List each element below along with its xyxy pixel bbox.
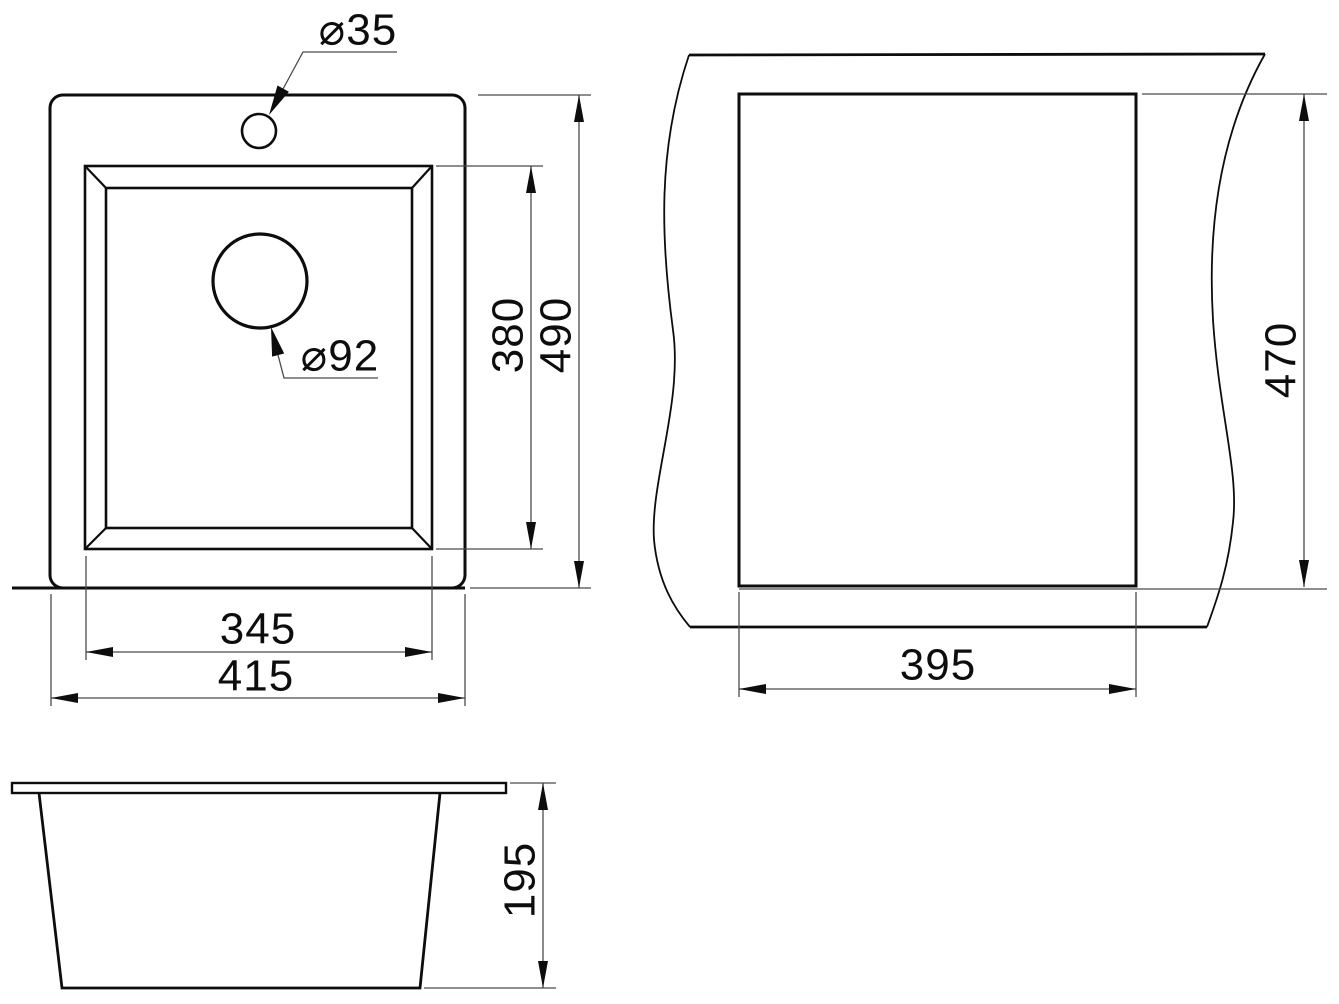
sink-outer-rim — [50, 95, 465, 588]
cutout-depth-label: 470 — [1257, 322, 1306, 398]
rim-flange — [12, 783, 506, 793]
front-view: 195 — [12, 783, 556, 988]
bowl-profile — [39, 793, 440, 988]
dimension-bowl-height: 195 — [424, 783, 556, 988]
break-line-left — [654, 55, 690, 627]
leader-arrowhead — [271, 327, 284, 357]
cutout-view: 470 395 — [654, 54, 1327, 697]
bowl-depth-label: 380 — [484, 297, 533, 373]
drain-hole — [213, 234, 307, 328]
faucet-diameter-label: ⌀35 — [319, 6, 397, 55]
leader-arrowhead — [269, 86, 289, 116]
overall-depth-label: 490 — [532, 297, 581, 373]
dimension-cutout-depth: 470 — [739, 94, 1327, 589]
faucet-hole — [242, 114, 276, 148]
bowl-height-label: 195 — [496, 842, 545, 918]
bowl-outer-edge — [85, 166, 432, 549]
bowl-corner-bevels — [85, 166, 432, 549]
countertop-top-edge — [689, 54, 1265, 55]
top-view: ⌀35 ⌀92 380 490 — [12, 6, 591, 707]
drawing-sheet: ⌀35 ⌀92 380 490 — [0, 0, 1339, 1004]
faucet-diameter-callout: ⌀35 — [269, 6, 397, 116]
dimension-bowl-depth: 380 — [436, 166, 543, 549]
dimension-cutout-width: 395 — [739, 592, 1136, 697]
cutout-width-label: 395 — [900, 641, 976, 690]
drain-diameter-label: ⌀92 — [301, 332, 379, 381]
sink-technical-drawing: ⌀35 ⌀92 380 490 — [0, 0, 1339, 1004]
drain-diameter-callout: ⌀92 — [271, 327, 379, 381]
dimension-bowl-width: 345 — [86, 556, 432, 660]
overall-width-label: 415 — [218, 652, 294, 701]
bowl-width-label: 345 — [220, 605, 296, 654]
cutout-rectangle — [739, 94, 1136, 586]
